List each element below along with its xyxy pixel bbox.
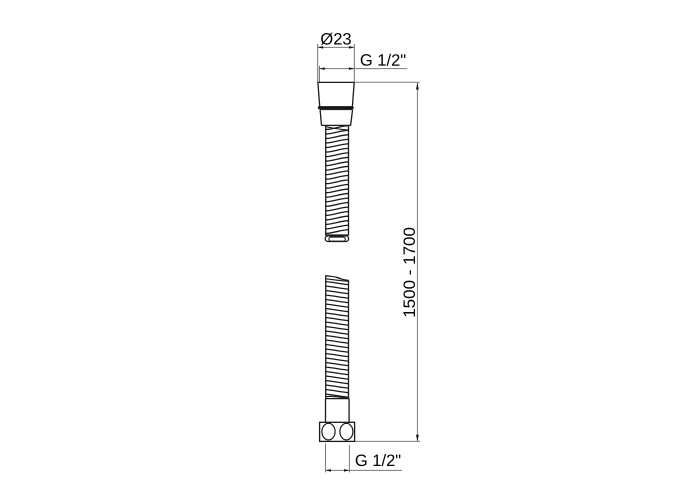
svg-text:G 1/2": G 1/2": [355, 452, 401, 470]
svg-text:1500 - 1700: 1500 - 1700: [400, 227, 419, 318]
svg-text:Ø23: Ø23: [320, 30, 351, 48]
svg-text:G 1/2": G 1/2": [360, 52, 406, 70]
